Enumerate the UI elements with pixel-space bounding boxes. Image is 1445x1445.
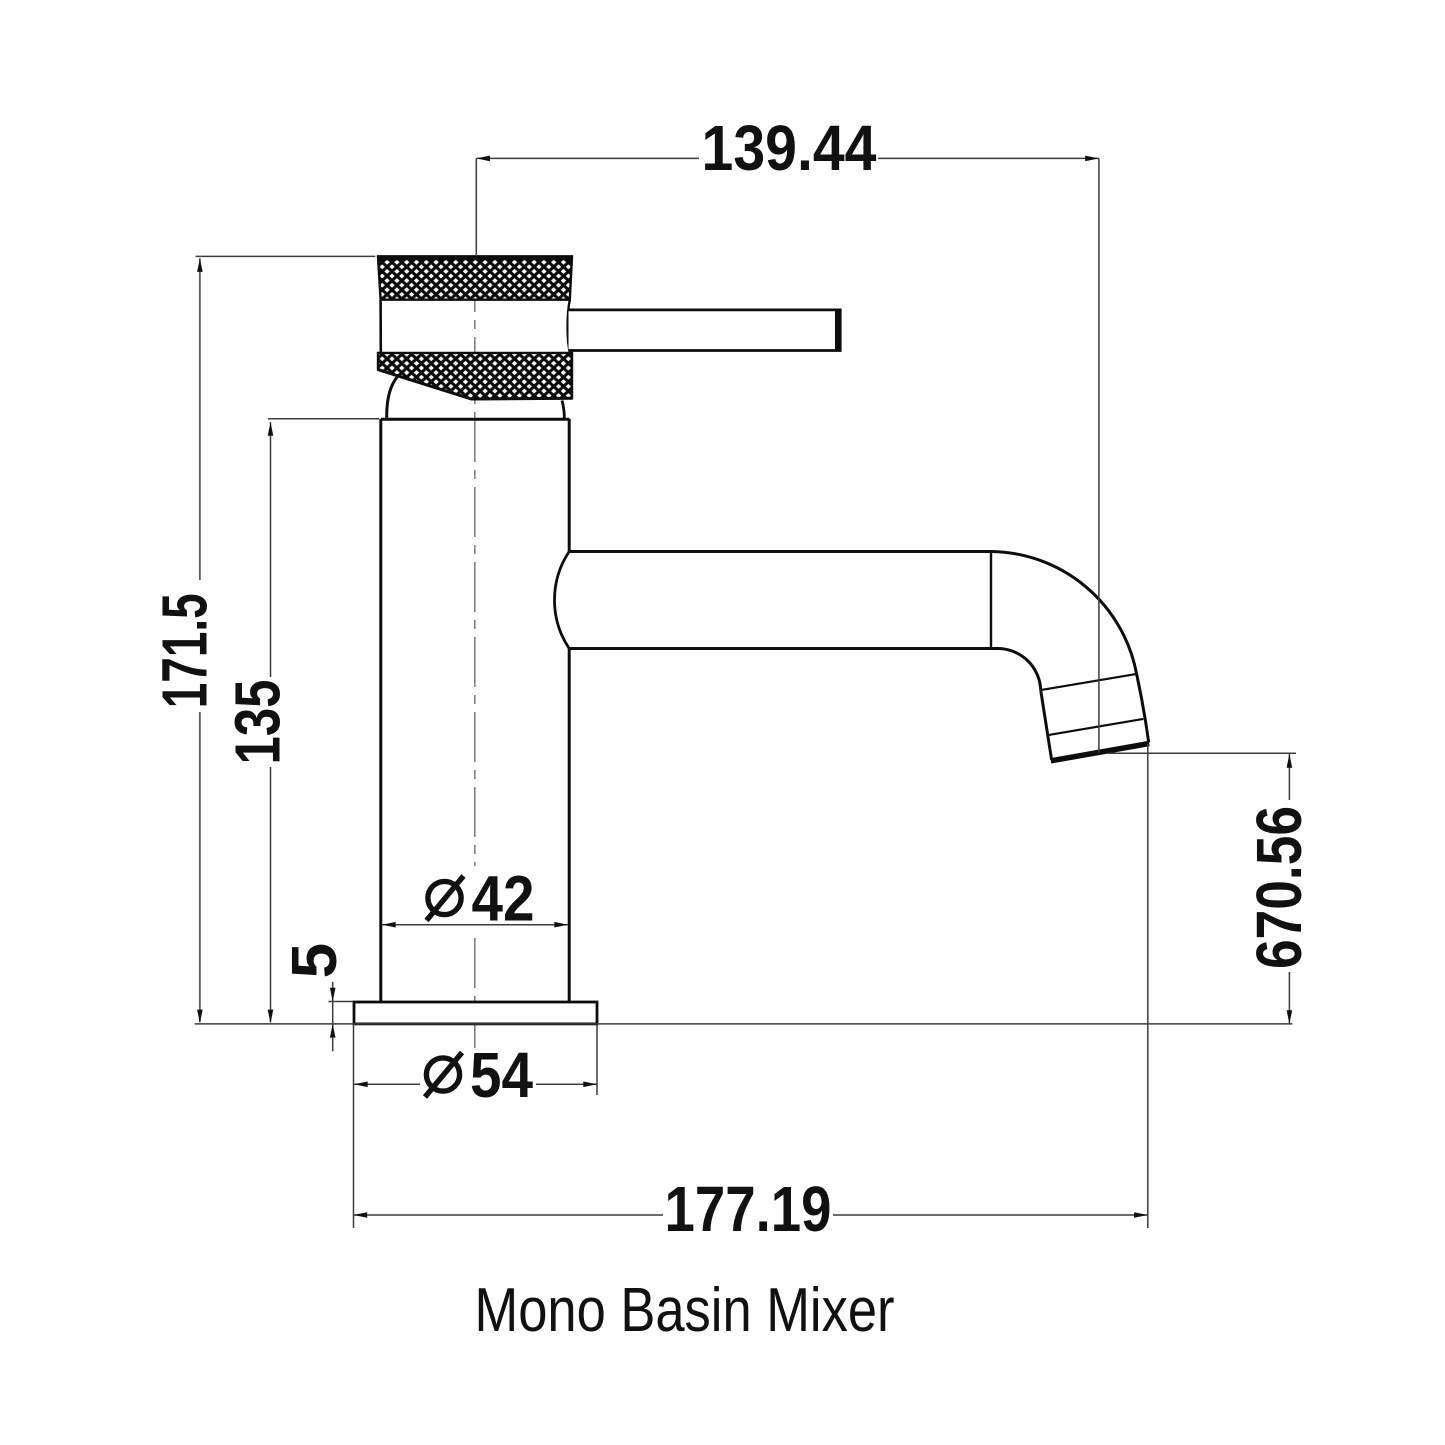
- svg-text:54: 54: [470, 1039, 533, 1111]
- svg-text:177.19: 177.19: [665, 1173, 832, 1245]
- svg-text:42: 42: [472, 863, 535, 935]
- svg-text:139.44: 139.44: [702, 112, 877, 184]
- svg-text:670.56: 670.56: [1243, 806, 1315, 969]
- svg-text:171.5: 171.5: [148, 593, 220, 708]
- svg-text:Mono Basin Mixer: Mono Basin Mixer: [475, 1276, 895, 1345]
- svg-text:5: 5: [278, 943, 350, 979]
- svg-text:135: 135: [221, 680, 293, 765]
